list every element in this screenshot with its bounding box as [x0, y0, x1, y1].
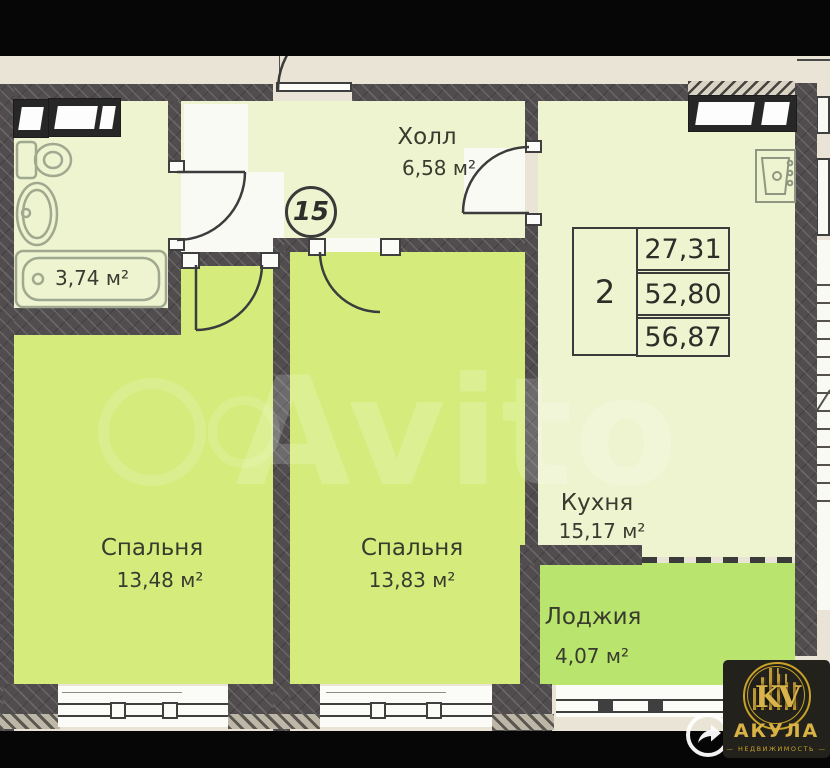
bedroom-1-door-arc: [196, 265, 262, 330]
unit-number: 15: [293, 197, 329, 227]
table-floor-area: 52,80: [636, 272, 730, 316]
kitchen-sink-basin: [762, 158, 789, 194]
toilet-tank-icon: [17, 142, 36, 178]
room-label-bedroom-1-name: Спальня: [101, 535, 203, 561]
unit-number-badge: 15: [285, 186, 337, 238]
table-living-area: 27,31: [636, 227, 730, 271]
bathroom-door-arc: [177, 172, 245, 240]
sink-inner: [23, 190, 51, 238]
total-area-value: 56,87: [644, 322, 721, 353]
door-arcs: [177, 18, 529, 330]
sink-drain: [22, 209, 30, 217]
table-total-area: 56,87: [636, 317, 730, 357]
top-letterbox-bar: [0, 0, 830, 56]
room-label-kitchen-name: Кухня: [561, 490, 633, 516]
room-label-kitchen-area: 15,17 м²: [559, 519, 646, 543]
toilet-bowl-inner: [44, 152, 62, 168]
room-label-bathroom-area: 3,74 м²: [55, 266, 129, 290]
bathtub-drain: [33, 274, 43, 284]
bedroom-2-door-arc: [320, 252, 380, 312]
logo-monogram: KV: [723, 680, 830, 715]
room-label-bedroom-1-area: 13,48 м²: [117, 568, 204, 592]
table-rooms-count: 2: [572, 227, 638, 356]
floor-area-value: 52,80: [644, 279, 721, 310]
room-label-bedroom-2-area: 13,83 м²: [369, 568, 456, 592]
logo-title: АКУЛА: [723, 720, 830, 742]
logo-subtitle: — НЕДВИЖИМОСТЬ —: [723, 745, 830, 753]
kitchen-sink-dot: [788, 181, 793, 186]
kitchen-sink-drain: [773, 172, 781, 180]
kitchen-sink-icon: [756, 150, 795, 202]
floorplan-screenshot: 15 2 27,31 52,80 56,87 Холл 6,58 м² 3,74…: [0, 0, 830, 768]
rooms-count-value: 2: [595, 273, 615, 311]
plan-vector-overlay: [0, 0, 830, 768]
staircase-steps: [816, 285, 830, 501]
room-label-hall-area: 6,58 м²: [402, 156, 476, 180]
room-label-hall-name: Холл: [397, 124, 456, 150]
kitchen-sink-dot: [788, 161, 793, 166]
living-area-value: 27,31: [644, 234, 721, 265]
toilet-bowl-icon: [35, 144, 71, 176]
room-label-loggia-area: 4,07 м²: [555, 644, 629, 668]
agency-logo: KV АКУЛА — НЕДВИЖИМОСТЬ —: [723, 660, 830, 758]
kitchen-sink-dot: [788, 171, 793, 176]
room-label-loggia-name: Лоджия: [545, 604, 642, 630]
room-label-bedroom-2-name: Спальня: [361, 535, 463, 561]
